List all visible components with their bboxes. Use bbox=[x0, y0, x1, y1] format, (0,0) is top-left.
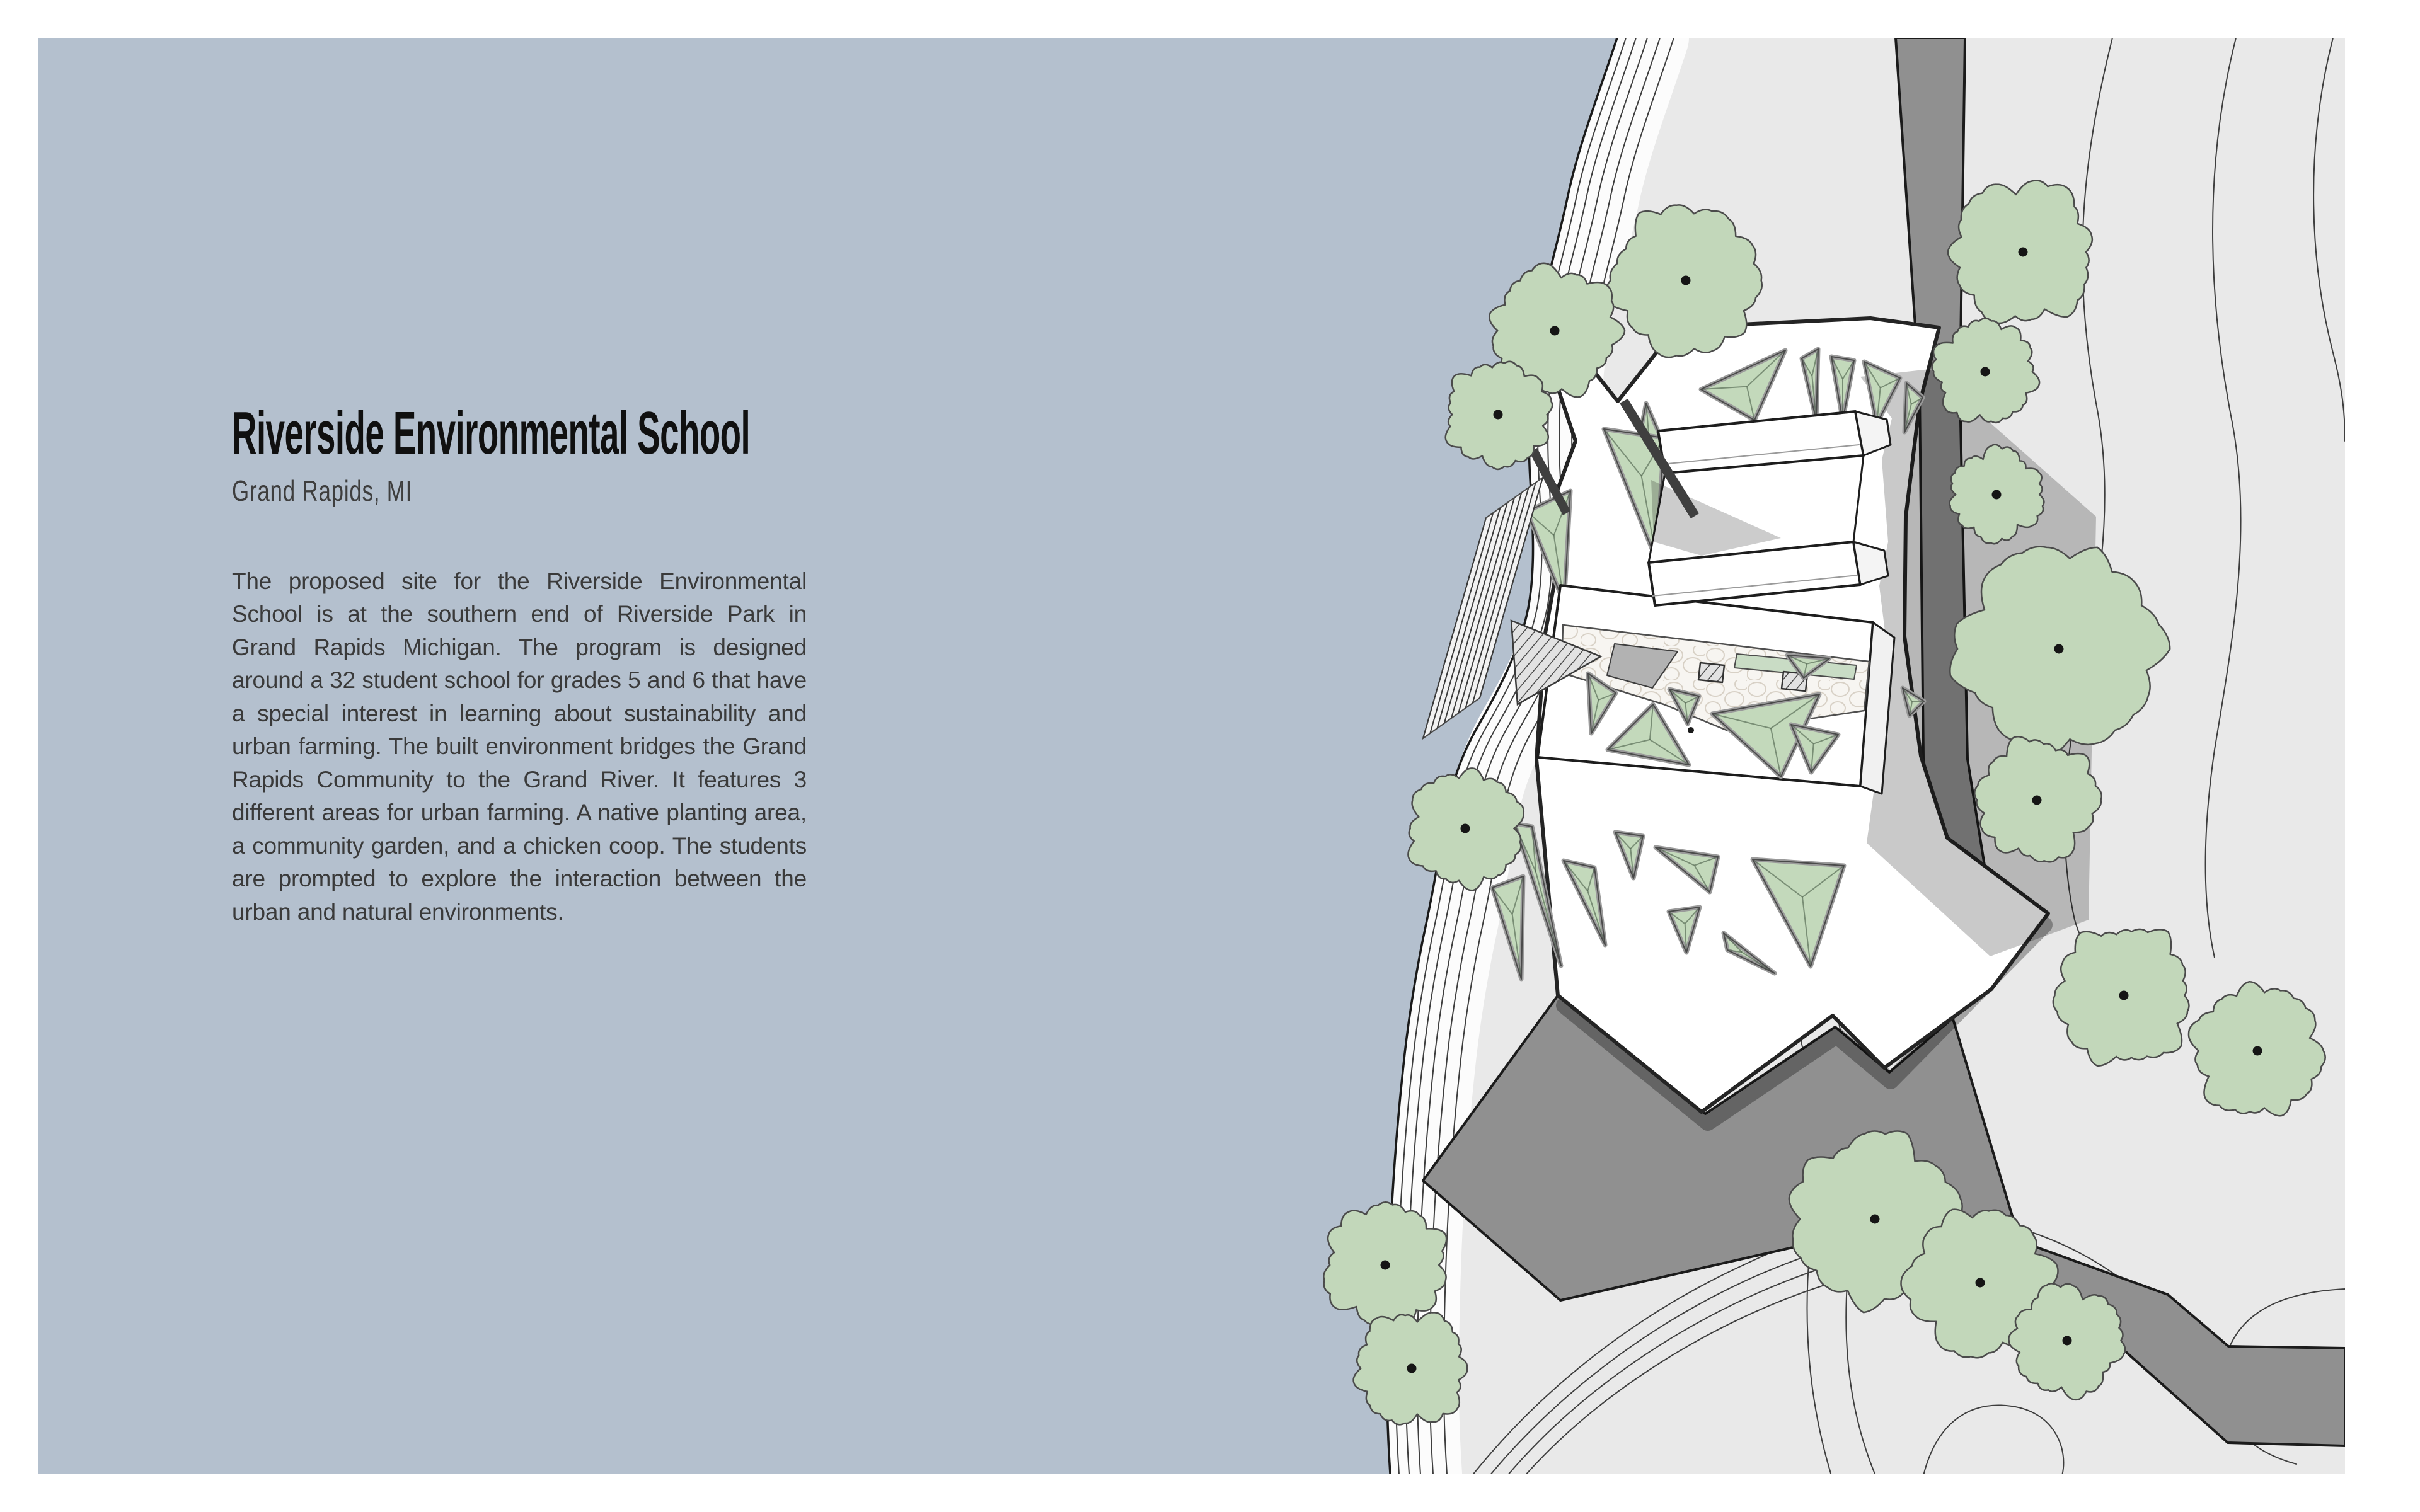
text-panel: Riverside Environmental School Grand Rap… bbox=[232, 403, 812, 929]
roof-vent bbox=[1698, 663, 1724, 682]
tree-trunk-dot bbox=[1494, 410, 1503, 420]
tree-trunk-dot bbox=[2063, 1336, 2072, 1346]
page-title: Riverside Environmental School bbox=[232, 403, 562, 464]
roof-point-marker bbox=[1688, 727, 1694, 733]
tree-trunk-dot bbox=[1981, 367, 1990, 377]
tree-trunk-dot bbox=[1992, 490, 2002, 500]
tree-trunk-dot bbox=[1976, 1278, 1985, 1288]
tree-trunk-dot bbox=[2253, 1046, 2262, 1056]
tree-trunk-dot bbox=[2032, 796, 2042, 805]
tree-trunk-dot bbox=[1381, 1261, 1390, 1270]
presentation-board: Riverside Environmental School Grand Rap… bbox=[0, 0, 2420, 1512]
tree-trunk-dot bbox=[1461, 824, 1470, 833]
tree-trunk-dot bbox=[2054, 644, 2064, 654]
tree-trunk-dot bbox=[1550, 326, 1560, 336]
project-description: The proposed site for the Riverside Envi… bbox=[232, 565, 807, 929]
tree-trunk-dot bbox=[1870, 1215, 1880, 1224]
tree-trunk-dot bbox=[2019, 248, 2028, 257]
tree-trunk-dot bbox=[1681, 276, 1691, 285]
tree-trunk-dot bbox=[2119, 991, 2129, 1000]
planter-fold-line bbox=[1912, 701, 1924, 702]
page-subtitle: Grand Rapids, MI bbox=[232, 475, 672, 507]
tree-trunk-dot bbox=[1407, 1364, 1417, 1373]
